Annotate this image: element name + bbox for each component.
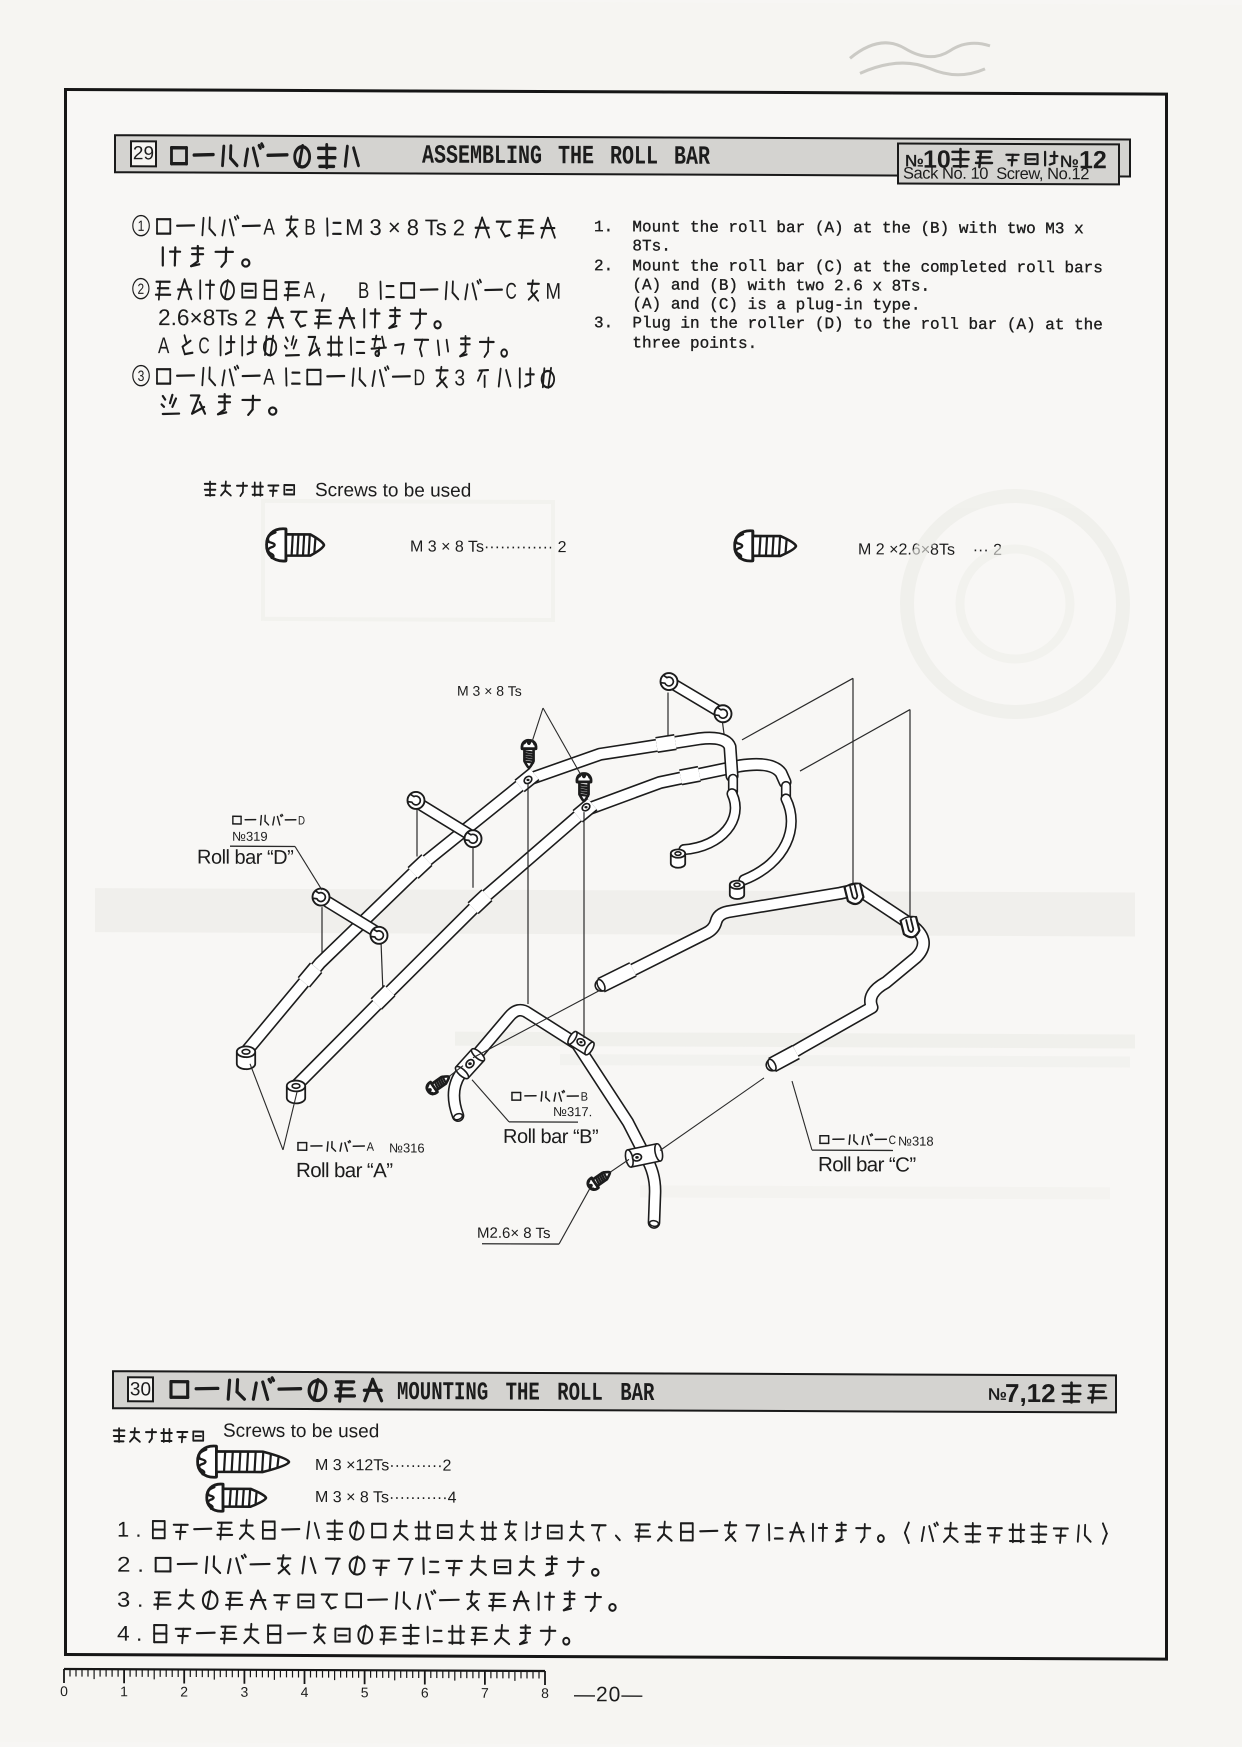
- svg-text:Roll bar “D”: Roll bar “D”: [197, 847, 293, 869]
- svg-text:№316: №316: [389, 1140, 425, 1155]
- svg-text:7: 7: [481, 1685, 489, 1701]
- svg-text:4: 4: [301, 1684, 309, 1700]
- svg-text:7,12: 7,12: [1005, 1378, 1056, 1408]
- svg-text:B: B: [581, 1090, 588, 1104]
- svg-text:№319: №319: [232, 829, 268, 844]
- svg-text:№318: №318: [898, 1133, 934, 1148]
- svg-text:0: 0: [60, 1683, 68, 1699]
- svg-text:6: 6: [421, 1684, 429, 1700]
- svg-text:3 .: 3 .: [117, 1588, 144, 1612]
- svg-text:M2.6× 8 Ts: M2.6× 8 Ts: [477, 1225, 551, 1242]
- svg-text:Roll bar “B”: Roll bar “B”: [503, 1126, 598, 1148]
- svg-text:3: 3: [241, 1684, 249, 1700]
- svg-text:Roll bar “A”: Roll bar “A”: [296, 1159, 393, 1182]
- svg-text:2: 2: [180, 1683, 188, 1699]
- svg-text:M 3 × 8 Ts: M 3 × 8 Ts: [457, 683, 522, 699]
- svg-text:2 .: 2 .: [117, 1553, 144, 1577]
- svg-text:A: A: [367, 1140, 375, 1154]
- svg-text:1 .: 1 .: [117, 1519, 141, 1543]
- svg-text:1: 1: [120, 1683, 128, 1699]
- svg-text:8: 8: [541, 1685, 549, 1701]
- svg-text:D: D: [298, 813, 305, 827]
- svg-text:№317.: №317.: [553, 1104, 592, 1119]
- svg-text:C: C: [889, 1133, 897, 1147]
- svg-text:5: 5: [361, 1684, 369, 1700]
- svg-text:Roll bar “C”: Roll bar “C”: [818, 1153, 916, 1176]
